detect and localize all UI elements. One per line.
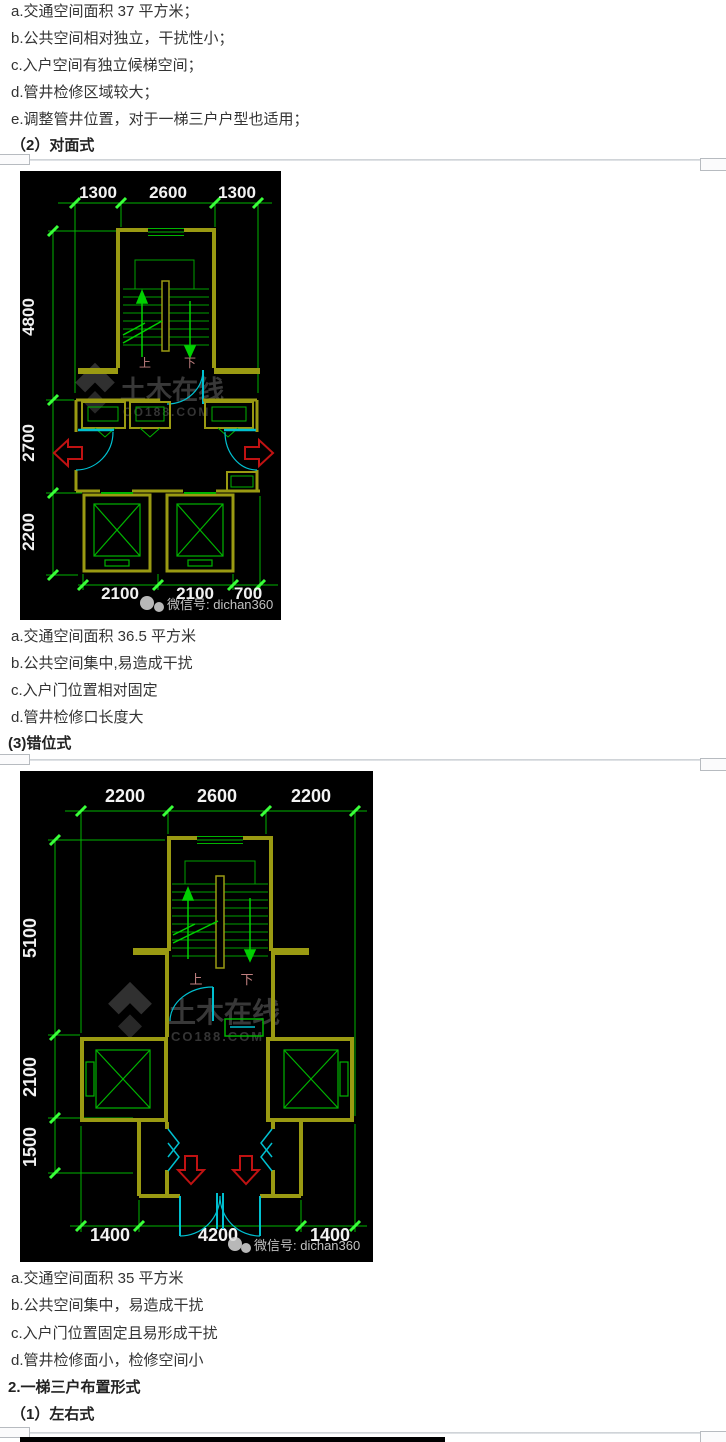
dim-label: 1500	[20, 1127, 40, 1167]
section-heading-santihu: 2.一梯三户布置形式	[8, 1379, 141, 1397]
dim-label: 2600	[149, 183, 187, 202]
section-divider	[0, 759, 726, 761]
list-item: a.交通空间面积 37 平方米；	[11, 3, 199, 21]
divider-handle-left	[0, 154, 30, 165]
section-divider	[0, 159, 726, 161]
dim-label: 5100	[20, 918, 40, 958]
section-divider	[0, 1432, 726, 1434]
dim-label: 2100	[20, 1057, 40, 1097]
dim-label: 4800	[20, 298, 38, 336]
next-floorplan-image-partial[interactable]	[20, 1437, 445, 1442]
dim-label: 1300	[218, 183, 256, 202]
list-item: c.入户空间有独立候梯空间；	[11, 57, 203, 75]
dim-label: 1400	[90, 1225, 130, 1245]
floorplan-duimian-image[interactable]: 土木在线 CO188.COM	[20, 171, 281, 620]
stair-up-label: 上	[139, 356, 151, 370]
divider-handle-left	[0, 754, 30, 765]
list-item: d.管井检修面小，检修空间小	[11, 1352, 204, 1370]
floorplan-cuowei-image[interactable]: 土木在线 CO188.COM	[20, 771, 373, 1262]
stair-up-label: 上	[189, 972, 202, 987]
dim-label: 2200	[20, 513, 38, 551]
list-item: d.管井检修区域较大；	[11, 84, 159, 102]
wechat-id: 微信号: dichan360	[167, 597, 273, 612]
divider-handle-right	[700, 1431, 726, 1442]
section-heading-cuowei: (3)错位式	[8, 735, 71, 753]
dim-label: 2100	[101, 584, 139, 603]
list-item: b.公共空间集中,易造成干扰	[11, 655, 193, 673]
article-page: a.交通空间面积 37 平方米； b.公共空间相对独立，干扰性小； c.入户空间…	[0, 0, 726, 1442]
list-item: e.调整管井位置，对于一梯三户户型也适用；	[11, 111, 309, 129]
list-item: c.入户门位置相对固定	[11, 682, 158, 700]
dim-label: 2200	[105, 786, 145, 806]
stair-down-label: 下	[240, 972, 253, 987]
dim-label: 2700	[20, 424, 38, 462]
stair-down-label: 下	[184, 356, 196, 370]
dim-label: 1300	[79, 183, 117, 202]
list-item: d.管井检修口长度大	[11, 709, 144, 727]
list-item: a.交通空间面积 35 平方米	[11, 1270, 184, 1288]
wechat-id: 微信号: dichan360	[254, 1238, 360, 1253]
section-heading-zuoyou: （1）左右式	[11, 1406, 94, 1424]
list-item: b.公共空间集中，易造成干扰	[11, 1297, 204, 1315]
list-item: b.公共空间相对独立，干扰性小；	[11, 30, 234, 48]
divider-handle-right	[700, 158, 726, 171]
list-item: a.交通空间面积 36.5 平方米	[11, 628, 196, 646]
dim-label: 2200	[291, 786, 331, 806]
dim-label: 2600	[197, 786, 237, 806]
list-item: c.入户门位置固定且易形成干扰	[11, 1325, 218, 1343]
section-heading-duimian: （2）对面式	[11, 137, 94, 155]
divider-handle-right	[700, 758, 726, 771]
